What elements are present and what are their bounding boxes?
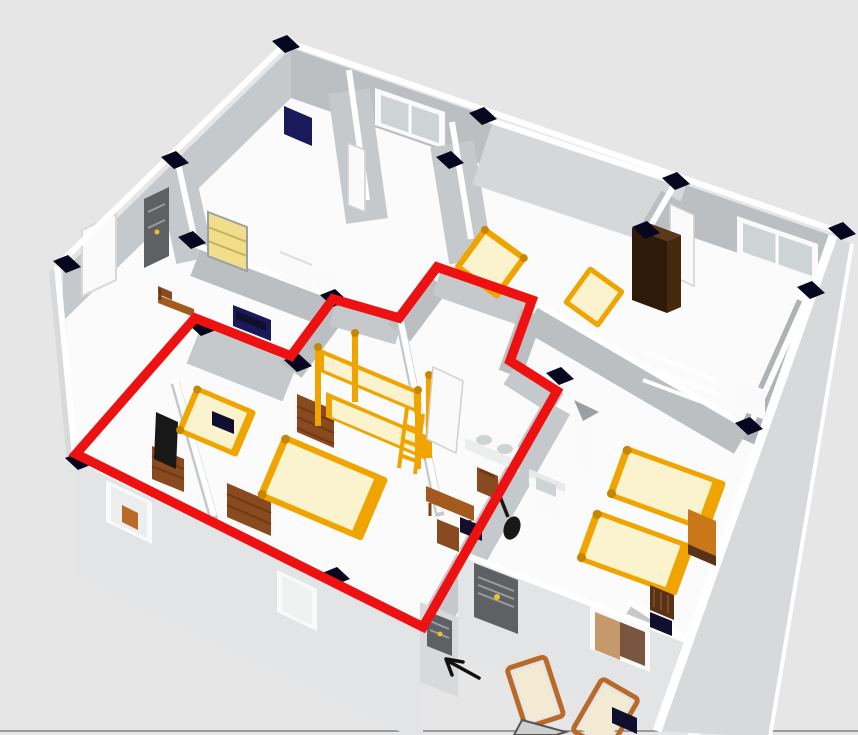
door-hall-dark [144,187,169,268]
door-bathroom [574,400,599,477]
floorplan-render [0,0,858,735]
door-top-center-white [348,143,365,212]
door-bunk-room [427,367,463,453]
3d-floorplan-viewport[interactable] [0,0,858,735]
wardrobe [632,222,681,313]
tv [154,412,178,469]
